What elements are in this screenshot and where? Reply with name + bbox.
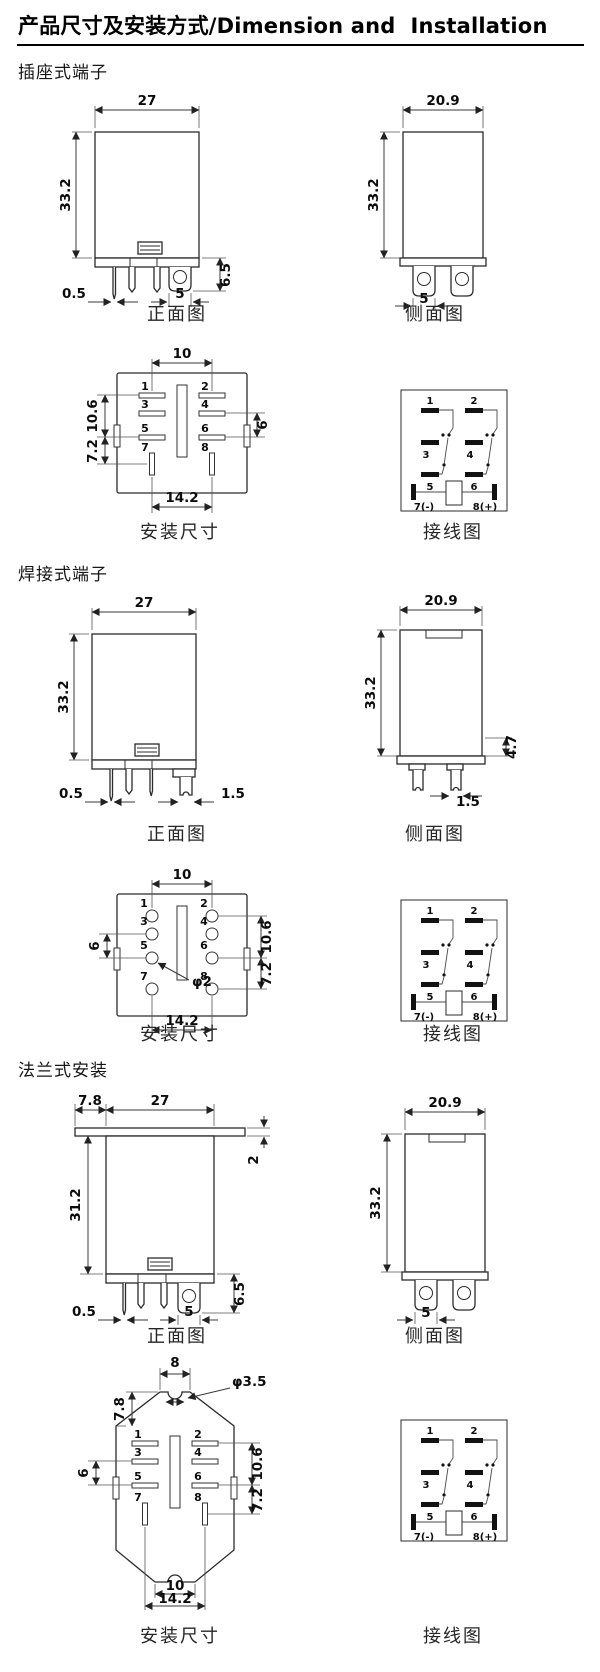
mount-outline bbox=[114, 894, 250, 1016]
wiring-pin-3: 3 bbox=[423, 1480, 430, 1491]
dim-10-6: 10.6 bbox=[85, 399, 101, 432]
dim-flange-7-8: 7.8 bbox=[78, 1093, 102, 1109]
wiring-pole-left: 1 3 5 bbox=[421, 906, 453, 1003]
mounting-flange-svg: 1 2 3 4 5 6 7 8 8 φ3.5 bbox=[48, 1352, 298, 1614]
relay-outline bbox=[400, 132, 486, 296]
dim-width-20-9: 20.9 bbox=[424, 593, 457, 609]
wiring-pin-1: 1 bbox=[427, 906, 434, 917]
wiring-pin-8-pos: 8(+) bbox=[473, 502, 497, 513]
dim-height-33-2: 33.2 bbox=[58, 178, 74, 211]
pin-8: 8 bbox=[194, 1491, 202, 1504]
caption-side-view-2: 侧面图 bbox=[350, 820, 520, 846]
wiring-pin-6: 6 bbox=[471, 1512, 478, 1523]
wiring-pin-5: 5 bbox=[427, 482, 434, 493]
dim-6: 6 bbox=[76, 1468, 92, 1477]
wiring-pin-5: 5 bbox=[427, 1512, 434, 1523]
wiring-pin-1: 1 bbox=[427, 396, 434, 407]
wiring-pin-8-pos: 8(+) bbox=[473, 1532, 497, 1543]
caption-side-view-1: 侧面图 bbox=[350, 300, 520, 326]
side-view-solder-svg: 20.9 33.2 4.7 1.5 bbox=[330, 590, 565, 808]
dim-flange-thickness-2: 2 bbox=[246, 1155, 262, 1164]
pin-2: 2 bbox=[201, 380, 209, 393]
wiring-diagram-1: 1 3 5 2 4 6 bbox=[398, 378, 510, 518]
dim-hole-phi-3-5: φ3.5 bbox=[232, 1374, 266, 1390]
dim-pin-0-5: 0.5 bbox=[59, 786, 83, 802]
wiring-diagram-svg: 1 3 5 2 4 6 bbox=[398, 888, 510, 1028]
dim-height-33-2: 33.2 bbox=[366, 178, 382, 211]
caption-mount-3: 安装尺寸 bbox=[95, 1622, 265, 1648]
dim-tab-6-5: 6.5 bbox=[218, 263, 234, 287]
dim-10-6: 10.6 bbox=[259, 920, 275, 953]
caption-wiring-3: 接线图 bbox=[368, 1622, 538, 1648]
pin-4: 4 bbox=[201, 398, 209, 411]
dim-tab-5: 5 bbox=[184, 1304, 193, 1320]
dim-tab-5: 5 bbox=[421, 1305, 430, 1321]
dim-10: 10 bbox=[173, 867, 192, 883]
caption-front-view-2: 正面图 bbox=[92, 820, 262, 846]
caption-mount-1: 安装尺寸 bbox=[95, 518, 265, 544]
wiring-pin-4: 4 bbox=[467, 1480, 474, 1491]
dim-hole-phi-2: φ2 bbox=[192, 974, 212, 990]
wiring-diagram-svg: 1 3 5 2 4 6 bbox=[398, 1408, 510, 1548]
pin-7: 7 bbox=[141, 441, 149, 454]
dim-8: 8 bbox=[170, 1355, 179, 1371]
wiring-pin-4: 4 bbox=[467, 450, 474, 461]
pin-6: 6 bbox=[200, 939, 208, 952]
pin-5: 5 bbox=[140, 939, 148, 952]
dim-4-7: 4.7 bbox=[504, 735, 520, 759]
wiring-pin-5: 5 bbox=[427, 992, 434, 1003]
side-view-socket-svg: 20.9 33.2 5 bbox=[333, 86, 548, 314]
relay-outline bbox=[75, 1128, 245, 1315]
dim-6: 6 bbox=[87, 941, 103, 950]
section-heading-flange: 法兰式安装 bbox=[18, 1056, 108, 1081]
dim-tab-6-5: 6.5 bbox=[232, 1282, 248, 1306]
dim-10-6: 10.6 bbox=[250, 1447, 266, 1480]
caption-side-view-3: 侧面图 bbox=[350, 1322, 520, 1348]
pin-3: 3 bbox=[141, 398, 149, 411]
wiring-pin-7-neg: 7(-) bbox=[414, 1532, 434, 1543]
dim-pin-0-5: 0.5 bbox=[72, 1304, 96, 1320]
caption-wiring-2: 接线图 bbox=[368, 1020, 538, 1046]
mounting-socket-svg: 1 2 3 4 5 6 7 8 10 10.6 7.2 6 14.2 bbox=[55, 333, 305, 525]
wiring-pin-1: 1 bbox=[427, 1426, 434, 1437]
wiring-pin-3: 3 bbox=[423, 960, 430, 971]
page-title: 产品尺寸及安装方式/Dimension and Installation bbox=[18, 10, 584, 40]
pin-4: 4 bbox=[200, 915, 208, 928]
caption-front-view-3: 正面图 bbox=[92, 1322, 262, 1348]
wiring-pole-right: 2 4 6 bbox=[465, 1426, 497, 1523]
wiring-coil: 7(-) 8(+) bbox=[411, 481, 497, 513]
pin-2: 2 bbox=[200, 897, 208, 910]
relay-outline bbox=[402, 1134, 488, 1310]
wiring-pin-6: 6 bbox=[471, 992, 478, 1003]
relay-outline bbox=[397, 630, 485, 790]
dim-7-2: 7.2 bbox=[259, 962, 275, 986]
wiring-pin-2: 2 bbox=[471, 906, 478, 917]
wiring-pin-2: 2 bbox=[471, 1426, 478, 1437]
pin-1: 1 bbox=[141, 380, 149, 393]
caption-front-view-1: 正面图 bbox=[92, 300, 262, 326]
relay-outline bbox=[95, 132, 199, 299]
wiring-pin-2: 2 bbox=[471, 396, 478, 407]
dim-width-20-9: 20.9 bbox=[426, 93, 459, 109]
datasheet-page: 产品尺寸及安装方式/Dimension and Installation 插座式… bbox=[0, 0, 600, 1672]
side-view-flange-svg: 20.9 33.2 5 bbox=[333, 1086, 563, 1326]
dim-height-33-2: 33.2 bbox=[56, 680, 72, 713]
dim-corner-7-8: 7.8 bbox=[112, 1397, 128, 1421]
dim-width-27: 27 bbox=[151, 1093, 170, 1109]
wiring-pin-7-neg: 7(-) bbox=[414, 502, 434, 513]
dim-7-2: 7.2 bbox=[250, 1488, 266, 1512]
wiring-pole-left: 1 3 5 bbox=[421, 396, 453, 493]
pin-7: 7 bbox=[134, 1491, 142, 1504]
wiring-pin-3: 3 bbox=[423, 450, 430, 461]
section-heading-socket: 插座式端子 bbox=[18, 58, 108, 83]
pin-8: 8 bbox=[201, 441, 209, 454]
dim-height-31-2: 31.2 bbox=[68, 1188, 84, 1221]
dim-width-20-9: 20.9 bbox=[428, 1095, 461, 1111]
dim-height-33-2: 33.2 bbox=[363, 676, 379, 709]
dim-pin-0-5: 0.5 bbox=[62, 286, 86, 302]
pin-5: 5 bbox=[141, 422, 149, 435]
dim-width-27: 27 bbox=[138, 93, 157, 109]
pin-6: 6 bbox=[194, 1470, 202, 1483]
wiring-diagram-3: 1 3 5 2 4 6 bbox=[398, 1408, 510, 1548]
pin-6: 6 bbox=[201, 422, 209, 435]
dim-pin-1-5: 1.5 bbox=[221, 786, 245, 802]
caption-mount-2: 安装尺寸 bbox=[95, 1020, 265, 1046]
wiring-pole-right: 2 4 6 bbox=[465, 396, 497, 493]
wiring-coil: 7(-) 8(+) bbox=[411, 991, 497, 1023]
pin-1: 1 bbox=[140, 897, 148, 910]
pin-3: 3 bbox=[140, 915, 148, 928]
title-underline bbox=[17, 44, 584, 46]
wiring-pole-left: 1 3 5 bbox=[421, 1426, 453, 1523]
dim-6: 6 bbox=[255, 420, 271, 429]
wiring-pin-6: 6 bbox=[471, 482, 478, 493]
front-view-socket-svg: 27 33.2 0.5 5 6.5 bbox=[30, 86, 290, 314]
wiring-pin-4: 4 bbox=[467, 960, 474, 971]
pin-4: 4 bbox=[194, 1446, 202, 1459]
mount-outline bbox=[114, 373, 250, 493]
wiring-pole-right: 2 4 6 bbox=[465, 906, 497, 1003]
pin-2: 2 bbox=[194, 1428, 202, 1441]
dim-7-2: 7.2 bbox=[85, 439, 101, 463]
wiring-diagram-2: 1 3 5 2 4 6 bbox=[398, 888, 510, 1028]
wiring-coil: 7(-) 8(+) bbox=[411, 1511, 497, 1543]
dim-14-2: 14.2 bbox=[158, 1591, 191, 1607]
pin-5: 5 bbox=[134, 1470, 142, 1483]
dim-10: 10 bbox=[173, 346, 192, 362]
front-view-solder-svg: 27 33.2 0.5 1.5 bbox=[30, 590, 280, 808]
dim-1-5: 1.5 bbox=[456, 794, 480, 808]
relay-outline bbox=[92, 634, 196, 801]
dim-14-2: 14.2 bbox=[165, 490, 198, 506]
pin-3: 3 bbox=[134, 1446, 142, 1459]
wiring-diagram-svg: 1 3 5 2 4 6 bbox=[398, 378, 510, 518]
pin-1: 1 bbox=[134, 1428, 142, 1441]
pin-7: 7 bbox=[140, 970, 148, 983]
dim-width-27: 27 bbox=[135, 595, 154, 611]
front-view-flange-svg: 7.8 27 2 31.2 0.5 5 6.5 bbox=[18, 1086, 303, 1326]
section-heading-solder: 焊接式端子 bbox=[18, 560, 108, 585]
dim-height-33-2: 33.2 bbox=[368, 1186, 384, 1219]
caption-wiring-1: 接线图 bbox=[368, 518, 538, 544]
